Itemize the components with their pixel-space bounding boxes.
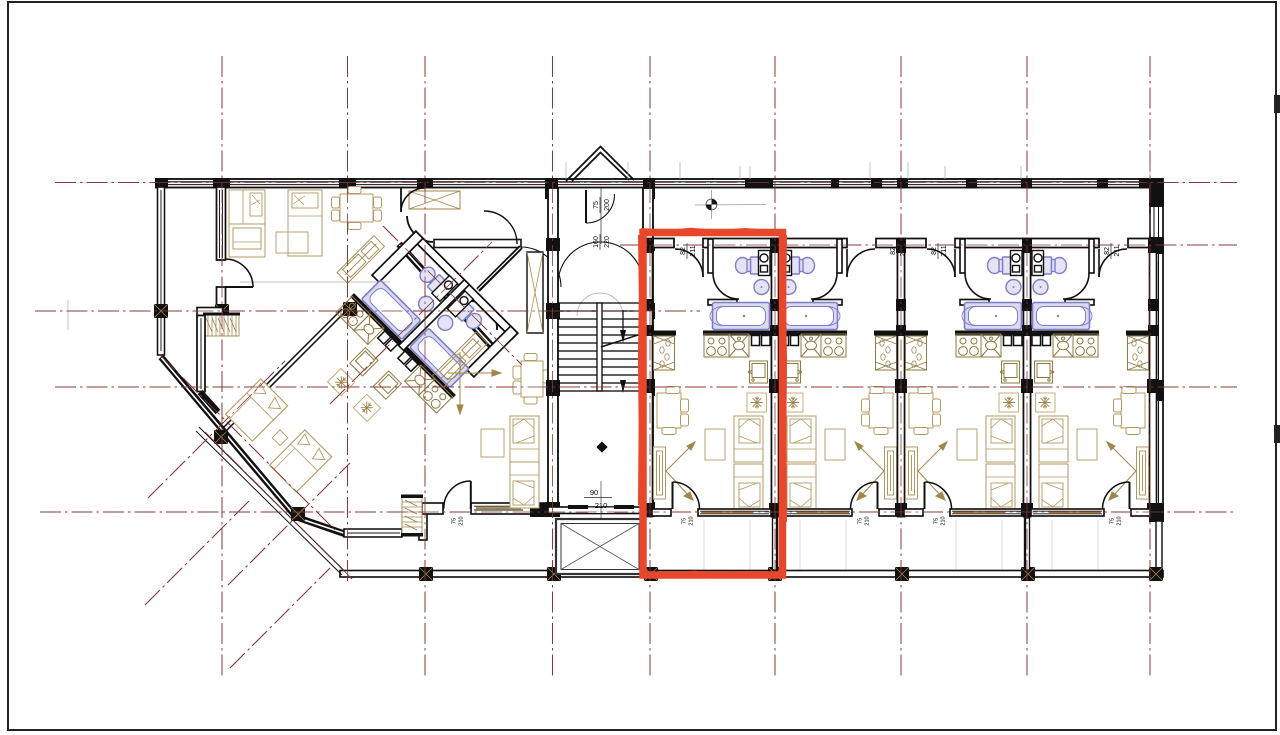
svg-text:75: 75 <box>934 518 940 524</box>
svg-text:75: 75 <box>858 518 864 524</box>
svg-text:82: 82 <box>680 247 687 255</box>
svg-text:82: 82 <box>1104 247 1111 255</box>
svg-text:82: 82 <box>931 247 938 255</box>
svg-text:211: 211 <box>1114 245 1121 256</box>
svg-text:75: 75 <box>452 518 458 524</box>
svg-text:210: 210 <box>941 516 947 525</box>
svg-text:200: 200 <box>604 199 611 211</box>
svg-text:210: 210 <box>865 516 871 525</box>
svg-text:75: 75 <box>682 518 688 524</box>
svg-text:211: 211 <box>690 245 697 256</box>
svg-text:90: 90 <box>590 488 598 497</box>
svg-text:210: 210 <box>459 516 465 525</box>
svg-text:82: 82 <box>890 247 897 255</box>
svg-text:211: 211 <box>941 245 948 256</box>
svg-text:210: 210 <box>1117 516 1123 525</box>
svg-text:210: 210 <box>689 516 695 525</box>
svg-text:75: 75 <box>593 201 600 209</box>
svg-text:75: 75 <box>1110 518 1116 524</box>
